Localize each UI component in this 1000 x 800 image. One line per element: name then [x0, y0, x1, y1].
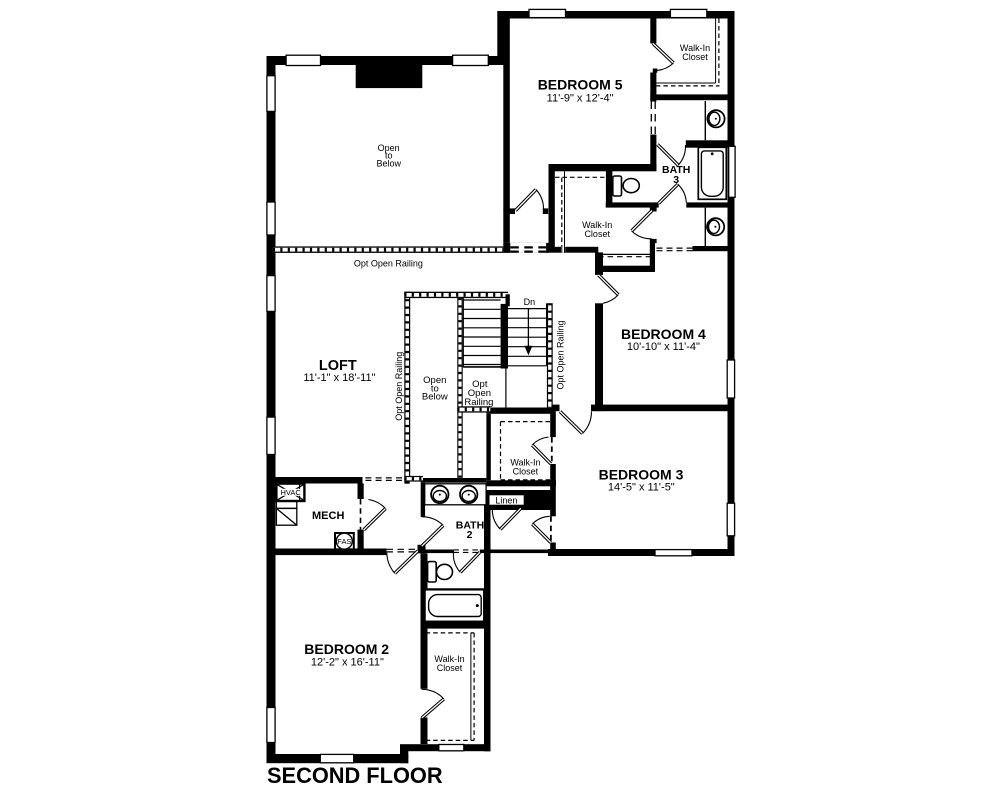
svg-text:Opt Open Railing: Opt Open Railing: [556, 320, 566, 389]
svg-text:Opt Open Railing: Opt Open Railing: [394, 352, 404, 421]
svg-text:MECH: MECH: [312, 510, 344, 522]
svg-text:12'-2" x 16'-11": 12'-2" x 16'-11": [311, 656, 384, 668]
svg-text:Below: Below: [376, 158, 401, 168]
svg-text:Below: Below: [422, 392, 448, 403]
svg-text:3: 3: [673, 174, 679, 186]
svg-text:BEDROOM 4: BEDROOM 4: [621, 326, 706, 342]
svg-text:2: 2: [467, 529, 473, 541]
svg-text:SECOND FLOOR: SECOND FLOOR: [267, 763, 443, 788]
svg-text:Opt Open Railing: Opt Open Railing: [354, 259, 423, 269]
svg-text:Closet: Closet: [437, 663, 463, 673]
svg-text:11'-9" x 12'-4": 11'-9" x 12'-4": [547, 92, 614, 104]
svg-text:Closet: Closet: [682, 52, 708, 62]
svg-text:Linen: Linen: [495, 495, 517, 505]
svg-text:14'-5" x 11'-5": 14'-5" x 11'-5": [608, 482, 675, 494]
svg-text:FAS: FAS: [337, 537, 351, 546]
svg-text:Railing: Railing: [464, 397, 493, 408]
svg-text:Dn: Dn: [524, 297, 536, 307]
svg-text:BEDROOM 5: BEDROOM 5: [538, 76, 623, 92]
svg-text:HVAC: HVAC: [280, 488, 301, 497]
svg-text:11'-1" x 18'-11": 11'-1" x 18'-11": [303, 372, 375, 384]
svg-text:BEDROOM 3: BEDROOM 3: [599, 467, 684, 483]
svg-text:Closet: Closet: [584, 229, 610, 239]
svg-text:BEDROOM 2: BEDROOM 2: [304, 641, 389, 657]
svg-text:Closet: Closet: [513, 467, 539, 477]
svg-text:10'-10" x 11'-4": 10'-10" x 11'-4": [627, 341, 700, 353]
